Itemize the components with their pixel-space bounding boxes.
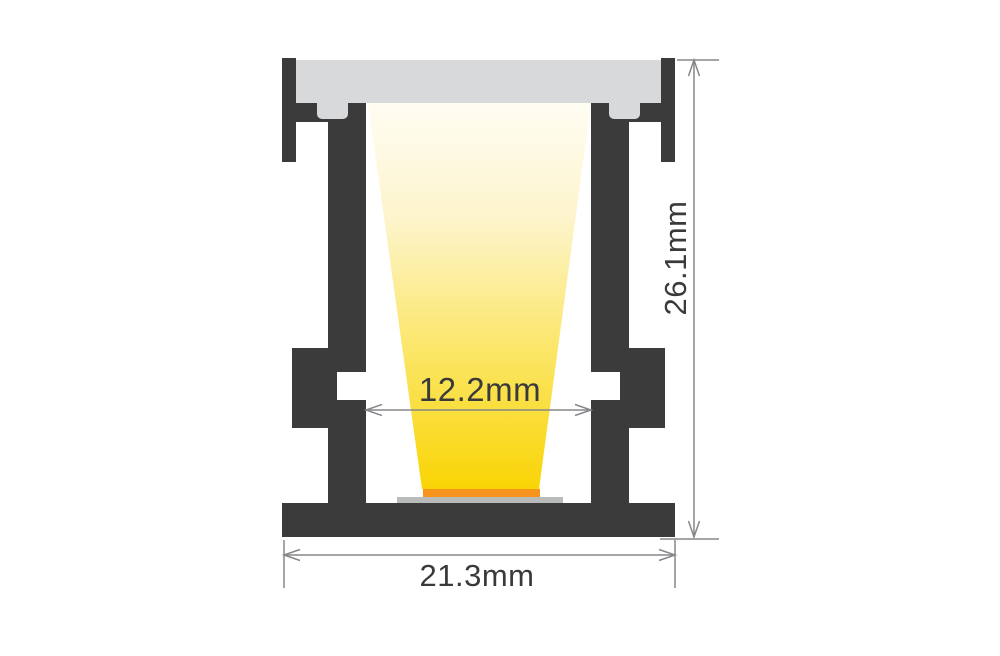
technical-drawing-page: 12.2mm 21.3mm 26.1mm: [0, 0, 1000, 656]
profile-mid-fin-left: [292, 348, 328, 428]
led-strip: [423, 489, 540, 497]
cross-section-drawing: 12.2mm 21.3mm 26.1mm: [0, 0, 1000, 656]
profile-inner-notch-left: [337, 372, 366, 400]
profile-base-plate: [282, 503, 675, 537]
overall-height-label: 26.1mm: [658, 201, 693, 316]
profile-wall-right: [591, 103, 629, 503]
led-assembly: [397, 489, 563, 504]
overall-width-label: 21.3mm: [420, 558, 535, 593]
profile-top-flange-left: [282, 58, 296, 162]
profile-inner-notch-right: [591, 372, 620, 400]
dimension-overall-width: 21.3mm: [284, 540, 675, 593]
light-beam: [368, 103, 591, 489]
led-pcb-base: [397, 497, 563, 504]
diffuser-cover: [296, 60, 661, 103]
inner-width-label: 12.2mm: [419, 371, 541, 408]
light-beam-group: [368, 103, 591, 489]
profile-mid-fin-right: [629, 348, 665, 428]
profile-top-flange-right: [661, 58, 675, 162]
profile-wall-left: [328, 103, 366, 503]
